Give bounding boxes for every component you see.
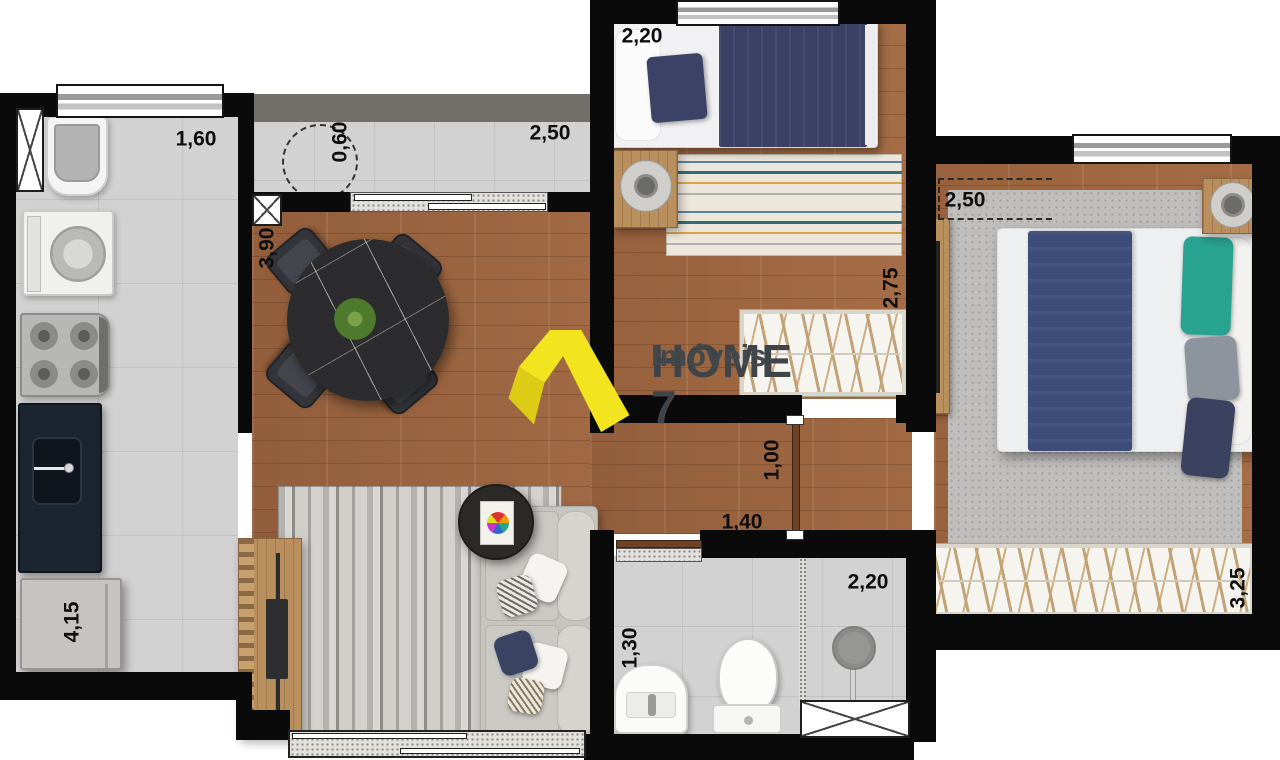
sliding-door-panel	[292, 733, 467, 739]
wall	[546, 192, 592, 212]
dimension-hall-width: 1,40	[722, 512, 763, 533]
burner-icon	[70, 360, 98, 388]
laundry-sink	[46, 116, 108, 196]
lamp-icon	[1210, 182, 1256, 228]
home7-logo-icon	[505, 330, 631, 434]
brand-logo: HOME 7 Imóveis	[505, 330, 651, 434]
dimension-bathroom-length: 2,20	[848, 572, 889, 593]
plant-icon	[334, 298, 376, 340]
door-jamb	[786, 530, 804, 540]
faucet-icon	[34, 467, 68, 470]
washing-machine-door	[50, 226, 106, 282]
master-wardrobe	[932, 544, 1254, 616]
wall	[700, 530, 936, 558]
wall	[906, 614, 1280, 650]
wall	[0, 672, 252, 700]
bathroom-door-leaf	[616, 540, 702, 548]
wall	[1252, 136, 1280, 650]
bathroom-door-threshold	[616, 548, 702, 562]
wall	[906, 532, 936, 742]
double-bed	[997, 228, 1256, 452]
teal-pillow	[1180, 236, 1233, 336]
toilet	[718, 638, 778, 714]
dimension-bedroom1-length: 2,75	[881, 268, 902, 309]
navy-throw	[1028, 231, 1132, 451]
bedroom-door-leaf	[792, 423, 800, 533]
faucet-icon	[648, 694, 656, 716]
wall	[238, 205, 252, 433]
dimension-bedroom1-width: 2,20	[622, 26, 663, 47]
dimension-hall-opening: 1,00	[762, 440, 783, 481]
dimension-master-length: 3,25	[1228, 568, 1249, 609]
wall	[0, 93, 16, 700]
sliding-door-panel	[400, 748, 580, 754]
dimension-balcony-depth: 0,60	[330, 122, 351, 163]
bathroom-sink	[614, 664, 688, 734]
shaft-box	[800, 700, 910, 738]
gray-pillow	[1184, 335, 1240, 402]
lamp-icon	[620, 160, 672, 212]
navy-pillow	[1180, 397, 1236, 480]
balcony-parapet	[254, 94, 592, 122]
dimension-service-width: 1,60	[176, 129, 217, 150]
flush-button-icon	[744, 716, 753, 725]
shaft-box	[252, 194, 282, 226]
burner-icon	[70, 322, 98, 350]
burner-icon	[30, 360, 58, 388]
tv	[266, 599, 288, 679]
coffee-table	[458, 484, 534, 560]
stove	[20, 313, 110, 397]
bedroom1-rug	[666, 154, 902, 256]
wall	[590, 530, 614, 736]
wall	[236, 710, 290, 740]
faucet-icon	[64, 463, 74, 473]
shower-partition	[799, 558, 806, 708]
window	[676, 0, 840, 26]
dimension-bathroom-width: 1,30	[620, 628, 641, 669]
wall	[906, 0, 936, 432]
sliding-door-panel	[428, 203, 546, 210]
bed-footboard	[865, 25, 875, 145]
logo-subtitle: Imóveis	[651, 338, 766, 374]
shower-head-icon	[832, 626, 876, 670]
art-book	[480, 501, 514, 545]
refrigerator-door-line	[105, 584, 108, 668]
dimension-master-width: 2,50	[945, 190, 986, 211]
washing-machine-panel	[27, 216, 41, 292]
stove-edge	[99, 317, 108, 393]
wall	[238, 93, 254, 207]
kitchen-counter	[18, 403, 102, 573]
window	[56, 84, 224, 118]
window	[1072, 134, 1232, 164]
wall	[896, 395, 936, 423]
starburst-icon	[487, 512, 509, 534]
burner-icon	[30, 322, 58, 350]
throw-pillow-patterned	[506, 676, 545, 715]
floor-plan: 1,60 0,60 2,50 2,20 3,90 2,75 2,50 1,00 …	[0, 0, 1280, 760]
dimension-kitchen-length: 4,15	[62, 602, 83, 643]
dimension-balcony-width: 2,50	[530, 123, 571, 144]
sliding-door-panel	[354, 194, 472, 201]
washing-machine	[22, 210, 114, 296]
toilet-tank	[712, 704, 782, 734]
shaft-box	[16, 108, 44, 192]
dimension-dining-length: 3,90	[257, 228, 278, 269]
navy-cushion	[646, 53, 708, 124]
laundry-sink-basin	[54, 124, 100, 182]
kitchen-sink	[32, 437, 82, 505]
navy-duvet	[719, 23, 867, 147]
